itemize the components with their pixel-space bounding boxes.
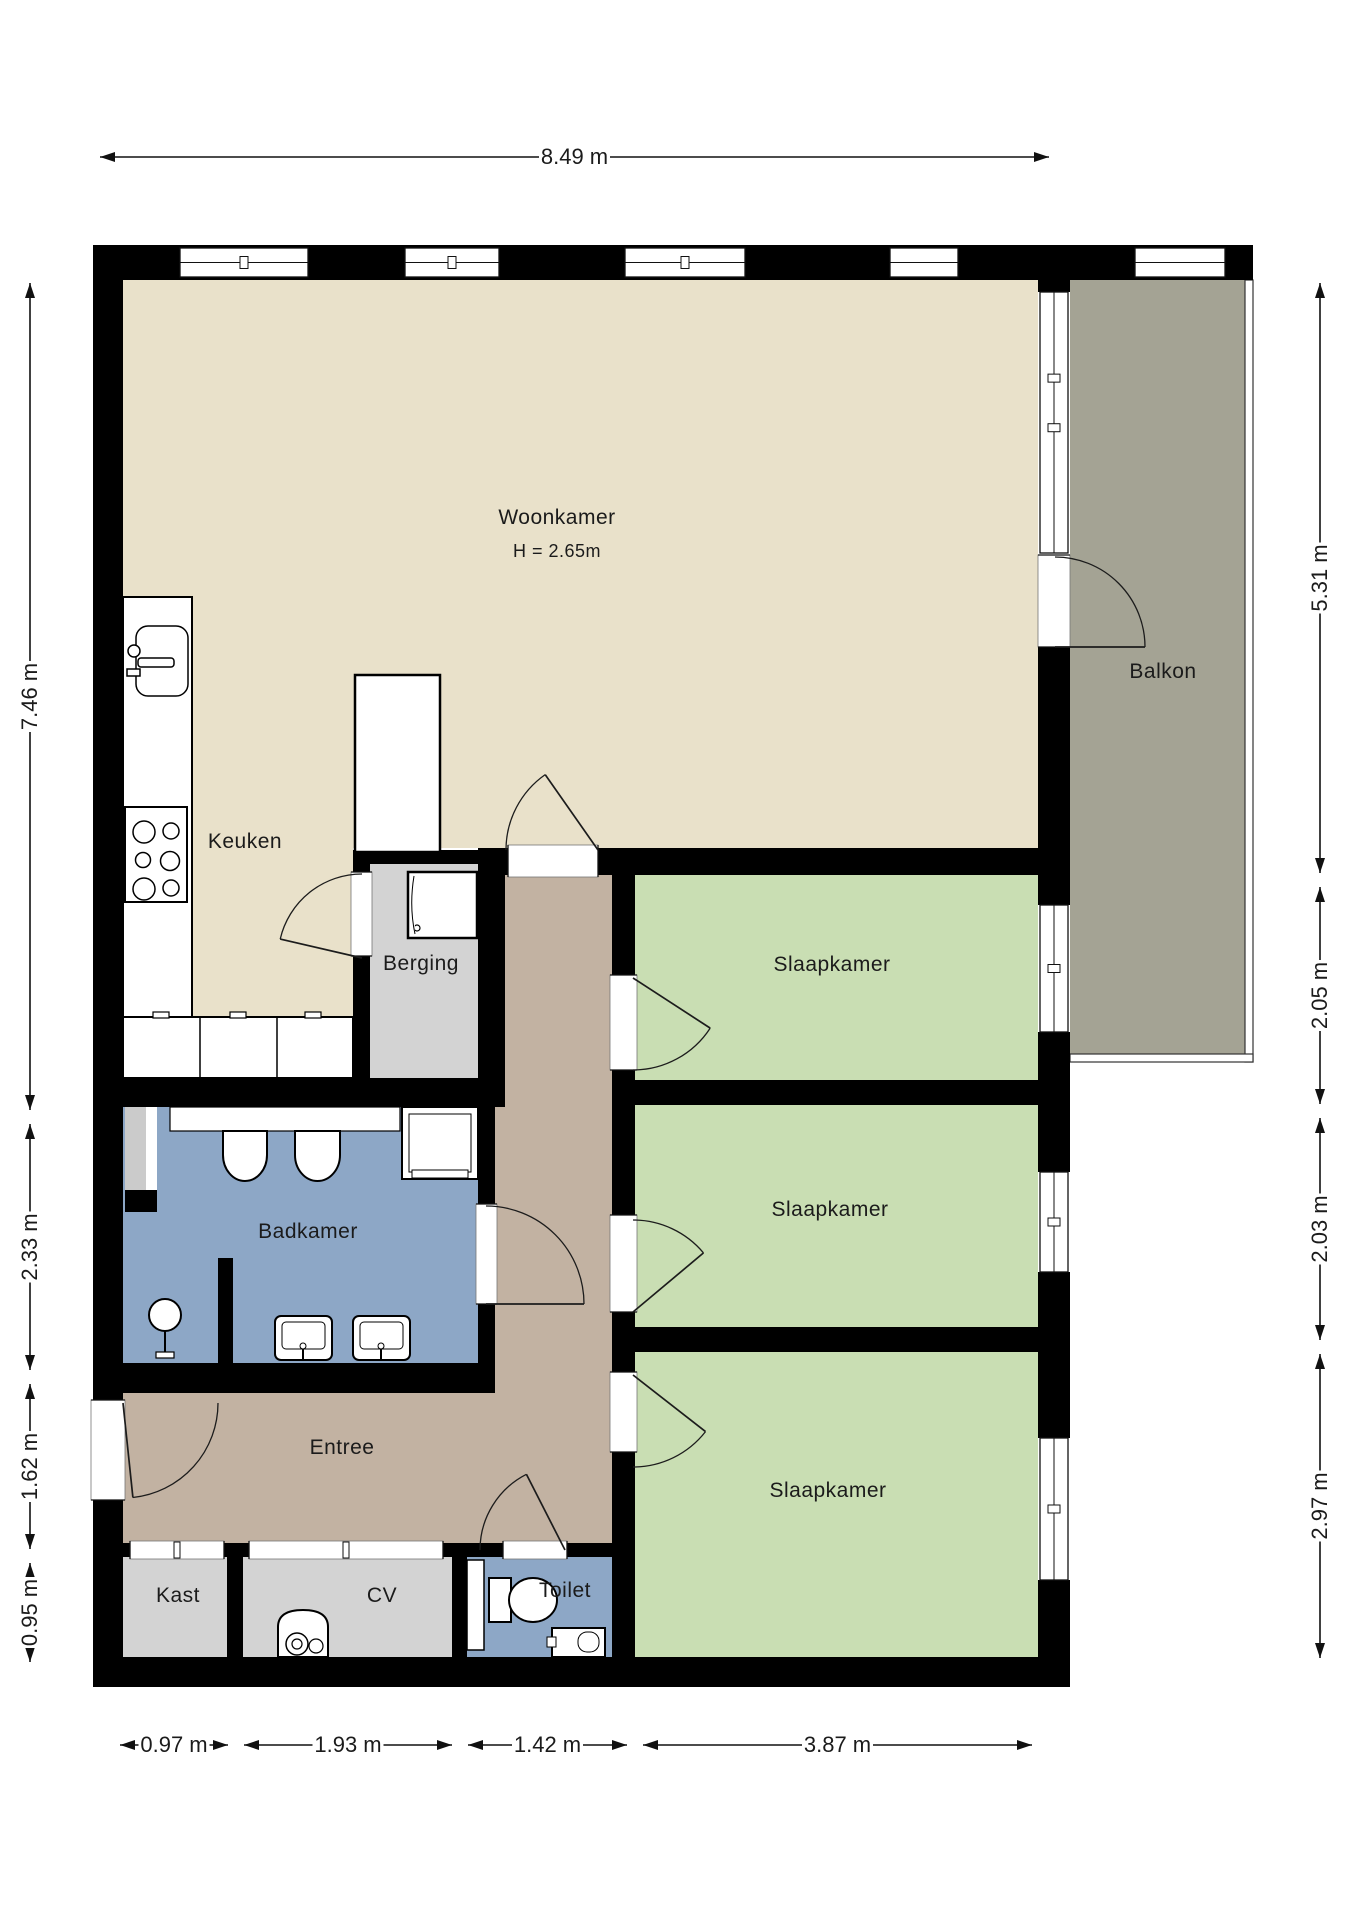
room-label-keuken: Keuken bbox=[208, 830, 282, 853]
window-tick bbox=[681, 257, 689, 269]
dimension-label: 2.03 m bbox=[1307, 1195, 1332, 1262]
room-entree-corridor-floor bbox=[505, 875, 612, 1107]
cv-boiler-dial-2 bbox=[309, 1639, 323, 1653]
bath-washer-inner bbox=[409, 1114, 471, 1172]
balkon-door-opening-gap bbox=[1038, 555, 1070, 647]
bath-shaft-inner bbox=[146, 1107, 157, 1190]
balkon-railing bbox=[1070, 1054, 1253, 1062]
cv-door-panel bbox=[249, 1541, 443, 1559]
dimension-label: 1.62 m bbox=[17, 1433, 42, 1500]
wall bbox=[1038, 1272, 1070, 1438]
slaapkamer1-door-opening bbox=[610, 975, 637, 1070]
room-label-slaapkamer2: Slaapkamer bbox=[771, 1198, 888, 1221]
wall bbox=[125, 1190, 157, 1212]
dimension-label-group: 2.03 m bbox=[1307, 1194, 1333, 1265]
room-woonkamer-keuken-floor bbox=[123, 280, 1038, 848]
window-tick bbox=[240, 257, 248, 269]
window-top-2 bbox=[405, 248, 499, 277]
shower-head bbox=[149, 1299, 181, 1331]
dimension-label-group: 2.33 m bbox=[17, 1212, 43, 1283]
slaapkamer3-door-opening bbox=[610, 1372, 637, 1452]
dimension-label-group: 5.31 m bbox=[1307, 543, 1333, 614]
room-label-cv: CV bbox=[367, 1584, 397, 1607]
window-tick bbox=[1048, 374, 1060, 382]
burner bbox=[163, 880, 179, 896]
window-top-3 bbox=[625, 248, 745, 277]
room-kast-floor bbox=[123, 1557, 227, 1657]
panel-tick bbox=[174, 1542, 180, 1558]
window-top-4 bbox=[890, 248, 958, 277]
dimension-label: 0.97 m bbox=[140, 1732, 207, 1757]
window-tick bbox=[448, 257, 456, 269]
dimension-label: 1.93 m bbox=[314, 1732, 381, 1757]
wc-tank bbox=[489, 1578, 511, 1622]
dim-left-4: 0.95 m bbox=[17, 1563, 43, 1662]
room-label-berging: Berging bbox=[383, 952, 459, 975]
room-label-entree: Entree bbox=[310, 1436, 375, 1459]
room-label-kast: Kast bbox=[156, 1584, 200, 1607]
burner bbox=[161, 852, 180, 871]
slaapkamer2-door-opening-gap bbox=[610, 1215, 637, 1312]
kast-door-panel bbox=[130, 1541, 224, 1559]
toilet-door-opening bbox=[503, 1541, 567, 1559]
wall bbox=[635, 1327, 1038, 1352]
cv-boiler-dial-inner bbox=[292, 1639, 302, 1649]
dimension-label: 2.33 m bbox=[17, 1213, 42, 1280]
wc-basin-faucet bbox=[547, 1637, 556, 1647]
room-slaapkamer-3-floor bbox=[635, 1352, 1038, 1657]
window-tick bbox=[1048, 1505, 1060, 1513]
dimension-label: 1.42 m bbox=[514, 1732, 581, 1757]
window-tick bbox=[1048, 1218, 1060, 1226]
room-cv-floor bbox=[243, 1557, 452, 1657]
room-entree-corridor-floor bbox=[123, 1393, 612, 1543]
balkon-door-opening bbox=[1038, 555, 1070, 647]
front-door-opening-gap bbox=[91, 1400, 125, 1500]
front-door-opening bbox=[91, 1400, 125, 1500]
dimension-label: 3.87 m bbox=[804, 1732, 871, 1757]
dimension-label: 0.95 m bbox=[17, 1579, 42, 1646]
dimension-label-group: 2.05 m bbox=[1307, 960, 1333, 1031]
burner bbox=[133, 878, 155, 900]
bath-toilet-2 bbox=[295, 1131, 340, 1181]
window-top-1 bbox=[180, 248, 308, 277]
woonkamer-hal-door-opening bbox=[508, 845, 598, 877]
kitchen-cabinet-row bbox=[123, 1017, 353, 1078]
kitchen-faucet-spout bbox=[138, 658, 174, 667]
room-slaapkamer-3 bbox=[635, 1352, 1038, 1657]
balkon-railing bbox=[1245, 280, 1253, 1062]
room-slaapkamer-1 bbox=[635, 875, 1038, 1080]
bath-toilet-1 bbox=[223, 1131, 267, 1181]
bath-sink-1-knob bbox=[300, 1343, 306, 1349]
window-balkon-top bbox=[1135, 248, 1225, 277]
burner bbox=[133, 821, 155, 843]
room-cv bbox=[243, 1557, 452, 1657]
wall bbox=[452, 1543, 467, 1657]
dimension-label-group: 2.97 m bbox=[1307, 1471, 1333, 1542]
floor-plan-page: WoonkamerH = 2.65mKeukenBergingBalkonSla… bbox=[0, 0, 1358, 1920]
badkamer-door-opening bbox=[476, 1204, 497, 1304]
berging-door-opening-gap bbox=[351, 872, 372, 956]
burner bbox=[136, 853, 151, 868]
wall bbox=[1038, 245, 1070, 292]
cabinet-handle bbox=[305, 1012, 321, 1018]
wc-basin-bowl bbox=[578, 1632, 599, 1652]
berging-door-opening bbox=[351, 872, 372, 956]
wall bbox=[93, 1657, 1070, 1687]
dimension-label: 2.97 m bbox=[1307, 1472, 1332, 1539]
room-label-woonkamer_height: H = 2.65m bbox=[513, 541, 601, 561]
slaapkamer1-door-opening-gap bbox=[610, 975, 637, 1070]
window-slaapkamer-1 bbox=[1040, 905, 1068, 1032]
bath-counter bbox=[170, 1107, 400, 1131]
room-label-slaapkamer3: Slaapkamer bbox=[769, 1479, 886, 1502]
room-label-balkon: Balkon bbox=[1129, 660, 1196, 683]
wall bbox=[635, 1080, 1038, 1105]
badkamer-door-opening-gap bbox=[476, 1204, 497, 1304]
wall bbox=[478, 848, 505, 1107]
room-label-toilet: Toilet bbox=[539, 1579, 591, 1602]
dimension-label-group: 0.95 m bbox=[17, 1577, 43, 1648]
cabinet-handle bbox=[153, 1012, 169, 1018]
slaapkamer3-door-opening-gap bbox=[610, 1372, 637, 1452]
cabinet-handle bbox=[230, 1012, 246, 1018]
wall bbox=[93, 1078, 495, 1107]
kitchen-faucet-knob bbox=[128, 645, 140, 657]
bath-washer-base bbox=[412, 1170, 468, 1178]
room-label-badkamer: Badkamer bbox=[258, 1220, 358, 1243]
panel-tick bbox=[343, 1542, 349, 1558]
dimension-label: 7.46 m bbox=[17, 663, 42, 730]
tall-cabinet bbox=[355, 675, 440, 852]
room-label-woonkamer: Woonkamer bbox=[498, 506, 615, 529]
woonkamer-hal-door-opening-gap bbox=[508, 845, 598, 877]
dimension-label-group: 7.46 m bbox=[17, 661, 43, 732]
wall bbox=[227, 1557, 243, 1657]
dimension-label: 8.49 m bbox=[541, 144, 608, 169]
wall bbox=[1038, 1580, 1070, 1687]
bath-sink-2-knob bbox=[378, 1343, 384, 1349]
window-tick bbox=[1048, 424, 1060, 432]
room-label-slaapkamer1: Slaapkamer bbox=[773, 953, 890, 976]
dimension-label-group: 1.62 m bbox=[17, 1431, 43, 1502]
wall bbox=[218, 1258, 233, 1363]
burner bbox=[163, 823, 179, 839]
dimension-label: 5.31 m bbox=[1307, 544, 1332, 611]
wall bbox=[1038, 1032, 1070, 1172]
room-entree-corridor-floor bbox=[495, 1107, 612, 1393]
dimension-label: 2.05 m bbox=[1307, 962, 1332, 1029]
kitchen-faucet-base bbox=[127, 669, 140, 676]
shower-base bbox=[156, 1352, 174, 1358]
wall bbox=[93, 1363, 495, 1393]
room-kast bbox=[123, 1557, 227, 1657]
room-slaapkamer-1-floor bbox=[635, 875, 1038, 1080]
slaapkamer2-door-opening bbox=[610, 1215, 637, 1312]
window-woonkamer-right bbox=[1040, 292, 1068, 553]
toilet-door-opening-gap bbox=[503, 1541, 567, 1559]
window-slaapkamer-2 bbox=[1040, 1172, 1068, 1272]
window-tick bbox=[1048, 965, 1060, 973]
floor-plan-svg: WoonkamerH = 2.65mKeukenBergingBalkonSla… bbox=[0, 0, 1358, 1920]
window-slaapkamer-3 bbox=[1040, 1438, 1068, 1580]
toilet-door-leaf bbox=[467, 1560, 484, 1650]
